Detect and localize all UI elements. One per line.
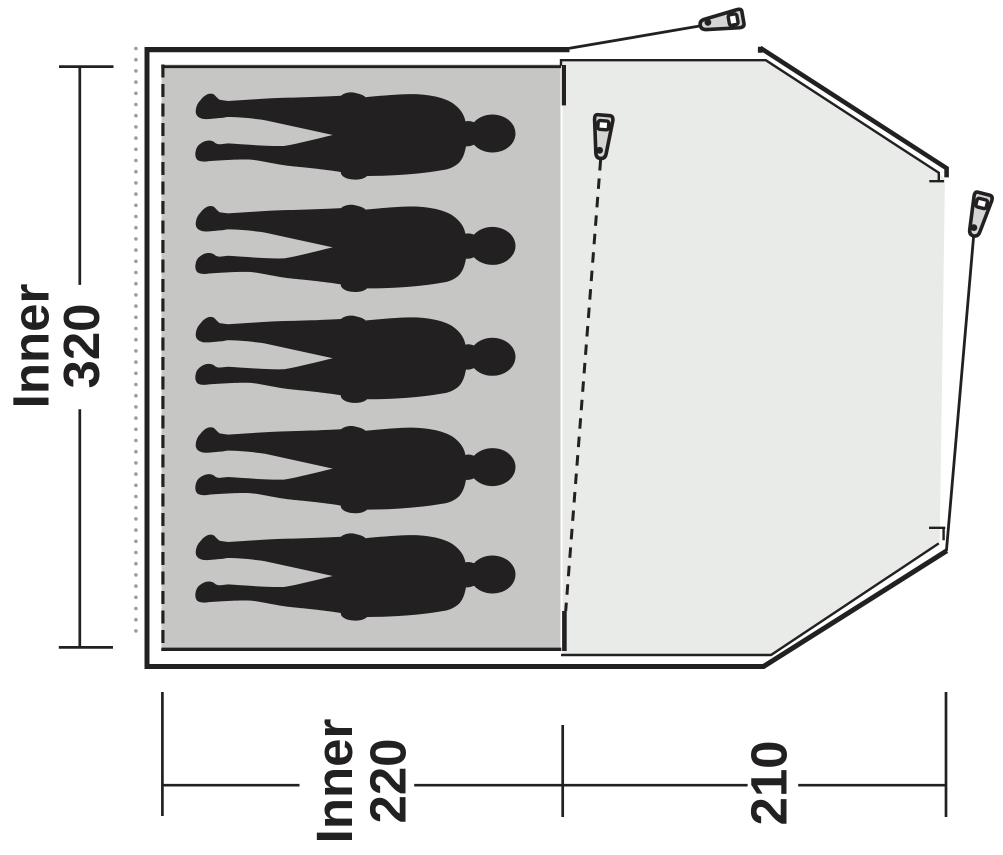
svg-text:220: 220 (360, 738, 417, 823)
svg-text:Inner: Inner (3, 284, 60, 409)
svg-text:210: 210 (741, 740, 798, 825)
svg-text:320: 320 (53, 303, 110, 388)
svg-text:Inner: Inner (306, 719, 363, 844)
